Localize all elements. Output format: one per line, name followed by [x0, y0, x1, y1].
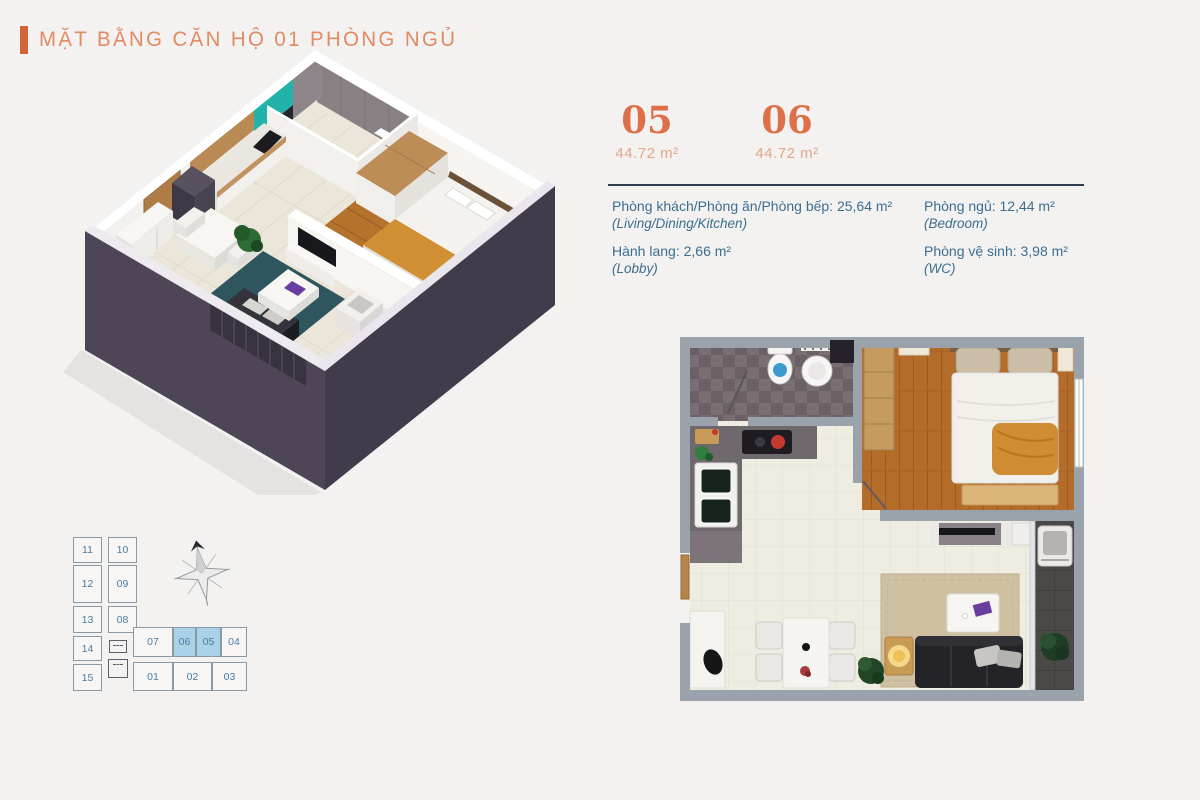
- shaft: [830, 340, 854, 363]
- coffee-table: [947, 594, 999, 632]
- room-label-en: (Lobby): [612, 260, 917, 277]
- keyplan-unit-label: 02: [187, 671, 199, 683]
- brochure-page: MẶT BẰNG CĂN HỘ 01 PHÒNG NGỦ: [0, 0, 1200, 800]
- room-label-vi: Phòng khách/Phòng ăn/Phòng bếp: 25,64 m²: [612, 198, 917, 215]
- keyplan-unit-label: 13: [82, 614, 94, 626]
- unit-info-panel: 05 06 44.72 m² 44.72 m² Phòng khách/Phòn…: [608, 98, 1086, 288]
- keyplan-unit-04: 04: [221, 627, 247, 657]
- room-label-vi: Hành lang: 2,66 m²: [612, 243, 917, 260]
- entrance-door: [681, 555, 689, 599]
- keyplan-unit-12: 12: [73, 565, 102, 603]
- keyplan-unit-13: 13: [73, 606, 102, 633]
- washing-machine: [1038, 526, 1072, 566]
- nightstand: [1058, 347, 1073, 371]
- dining-chair: [756, 654, 782, 681]
- keyplan-unit-14: 14: [73, 636, 102, 661]
- keyplan-unit-label: 14: [82, 643, 94, 655]
- dining-chair: [756, 622, 782, 649]
- unit-number-05: 05: [612, 98, 682, 142]
- room-label-en: (WC): [924, 260, 1086, 277]
- desk: [690, 611, 725, 688]
- keyplan-unit-06-highlighted: 06: [173, 627, 196, 657]
- floorplan-2d: [675, 331, 1090, 708]
- keyplan-unit-label: 03: [224, 671, 236, 683]
- keyplan-unit-label: 01: [147, 671, 159, 683]
- unit-number-06: 06: [752, 98, 822, 142]
- legend-column-left: Phòng khách/Phòng ăn/Phòng bếp: 25,64 m²…: [612, 198, 917, 288]
- keyplan-unit-05-highlighted: 05: [196, 627, 221, 657]
- pillow: [1008, 348, 1052, 374]
- keyplan-unit-11: 11: [73, 537, 102, 563]
- elevator-icon: [109, 640, 127, 653]
- dining-chair: [829, 654, 855, 681]
- floorplan-3d-drawing: [45, 50, 575, 495]
- keyplan-unit-01: 01: [133, 662, 173, 691]
- keyplan-unit-10: 10: [108, 537, 137, 563]
- bed-bench: [962, 485, 1058, 505]
- keyplan-unit-label: 11: [82, 544, 93, 556]
- bathroom-floor: [690, 343, 853, 421]
- keyplan-unit-07: 07: [133, 627, 173, 657]
- divider-rule: [608, 184, 1084, 186]
- keyplan-unit-label: 04: [228, 636, 240, 648]
- floorplan-2d-drawing: [675, 331, 1090, 708]
- legend-column-right: Phòng ngủ: 12,44 m² (Bedroom) Phòng vệ s…: [924, 198, 1086, 288]
- sofa-pillow: [996, 649, 1022, 668]
- kitchen-cabinet: [690, 531, 742, 563]
- dining-table: [783, 618, 829, 688]
- title-accent-bar: [20, 26, 28, 54]
- sofa: [915, 636, 1023, 688]
- keyplan-unit-label: 15: [82, 672, 94, 684]
- page-title: MẶT BẰNG CĂN HỘ 01 PHÒNG NGỦ: [39, 28, 457, 52]
- keyplan-unit-02: 02: [173, 662, 212, 691]
- room-label-vi: Phòng ngủ: 12,44 m²: [924, 198, 1086, 215]
- keyplan-unit-label: 09: [117, 578, 129, 590]
- cabinet: [1012, 523, 1030, 545]
- keyplan-unit-03: 03: [212, 662, 247, 691]
- keyplan-unit-label: 10: [117, 544, 129, 556]
- room-label-en: (Living/Dining/Kitchen): [612, 215, 917, 232]
- dining-chair: [829, 622, 855, 649]
- unit-area-05: 44.72 m²: [612, 145, 682, 162]
- unit-area-06: 44.72 m²: [752, 145, 822, 162]
- tv: [939, 528, 995, 535]
- keyplan-unit-label: 12: [82, 578, 94, 590]
- keyplan-unit-label: 08: [117, 614, 129, 626]
- elevator-icon: [108, 659, 128, 678]
- legend-item: Phòng ngủ: 12,44 m² (Bedroom): [924, 198, 1086, 232]
- pillow: [956, 348, 1000, 374]
- compass-icon: [172, 532, 232, 612]
- sliding-door: [1030, 521, 1035, 690]
- floorplan-3d: [45, 50, 575, 495]
- legend-item: Phòng vệ sinh: 3,98 m² (WC): [924, 243, 1086, 277]
- keyplan: 11 10 12 09 13 08 14 15 07 06 05 04 01 0…: [60, 532, 330, 702]
- keyplan-unit-15: 15: [73, 664, 102, 691]
- legend-item: Phòng khách/Phòng ăn/Phòng bếp: 25,64 m²…: [612, 198, 917, 232]
- room-label-en: (Bedroom): [924, 215, 1086, 232]
- keyplan-unit-label: 06: [179, 636, 191, 648]
- keyplan-unit-09: 09: [108, 565, 137, 603]
- room-label-vi: Phòng vệ sinh: 3,98 m²: [924, 243, 1086, 260]
- keyplan-unit-label: 07: [147, 636, 159, 648]
- keyplan-unit-label: 05: [203, 636, 215, 648]
- legend-item: Hành lang: 2,66 m² (Lobby): [612, 243, 917, 277]
